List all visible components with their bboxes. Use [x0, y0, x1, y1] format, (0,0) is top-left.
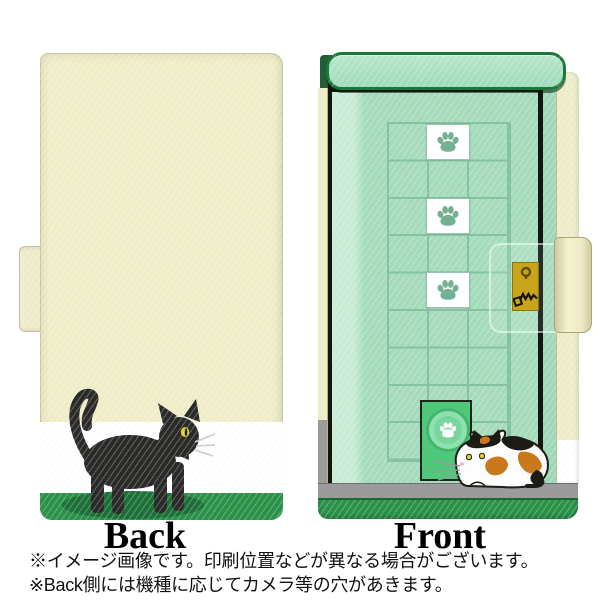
calico-eye — [479, 453, 484, 459]
key-icon — [513, 289, 538, 307]
spine-edge-strip — [318, 88, 328, 483]
paw-window-1 — [426, 124, 470, 160]
calico-eye — [466, 454, 471, 460]
product-mockup-image: Back Front ※イメージ画像です。印刷位置などが異なる場合がございます。… — [0, 0, 600, 600]
disclaimer-notes: ※イメージ画像です。印刷位置などが異なる場合がございます。 ※Back側には機種… — [29, 549, 589, 597]
note-line-2: ※Back側には機種に応じてカメラ等の穴があきます。 — [29, 573, 589, 597]
front-view — [318, 45, 590, 520]
paw-print-icon — [435, 203, 461, 229]
gold-lock-plate — [512, 262, 539, 311]
back-view — [19, 53, 283, 520]
keyhole-icon — [518, 266, 534, 282]
paw-print-icon — [435, 277, 461, 303]
door-top-bar — [326, 52, 566, 90]
back-cover-panel — [40, 53, 283, 520]
calico-cat-illustration — [432, 426, 552, 490]
black-cat-illustration — [55, 380, 215, 520]
note-line-1: ※イメージ画像です。印刷位置などが異なる場合がございます。 — [29, 549, 589, 573]
paw-window-2 — [426, 198, 470, 234]
clasp-strap — [554, 237, 592, 333]
paw-print-icon — [435, 129, 461, 155]
paw-window-3 — [426, 272, 470, 308]
